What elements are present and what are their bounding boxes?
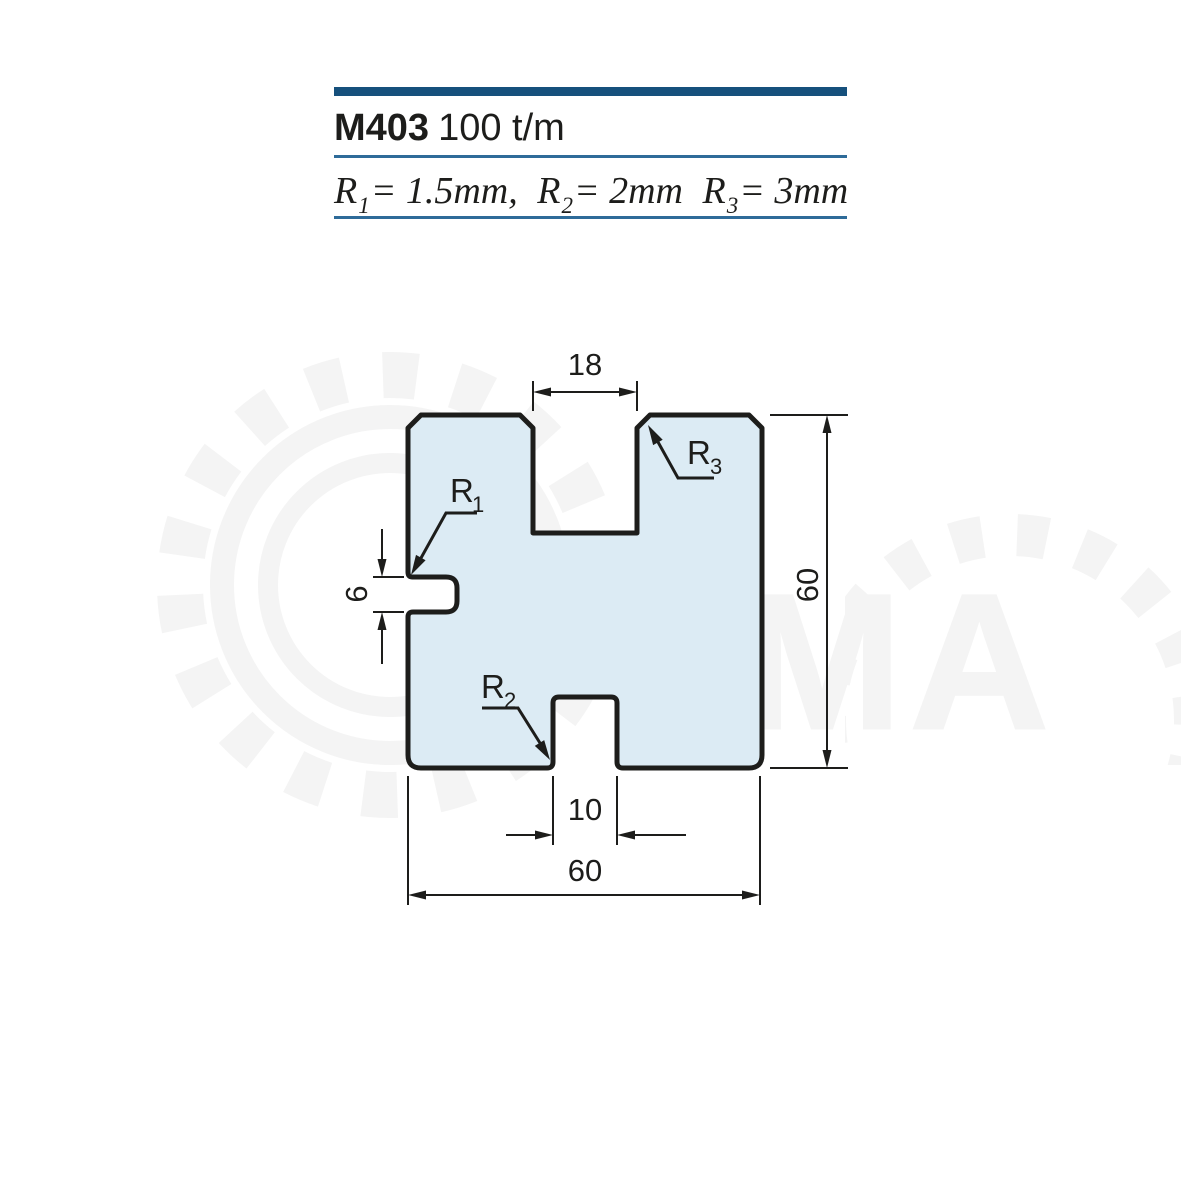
dim-bottom-notch-width: 10	[506, 792, 686, 840]
dim-side-notch-height: 6	[339, 529, 387, 664]
arrowhead-right-icon	[619, 388, 637, 397]
dim-overall-width-label: 60	[568, 853, 602, 888]
arrowhead-up-icon	[378, 612, 387, 630]
arrowhead-up-icon	[823, 415, 832, 433]
arrowhead-right-icon	[742, 891, 760, 900]
arrowhead-down-icon	[378, 559, 387, 577]
dim-side-notch-height-label: 6	[339, 585, 374, 602]
radius-label-r3: R	[687, 434, 711, 471]
dim-overall-width: 60	[408, 853, 760, 900]
radius-label-r3-sub: 3	[710, 454, 722, 479]
dim-top-slot-width-label: 18	[568, 347, 602, 382]
radius-label-r2-sub: 2	[504, 688, 516, 713]
arrowhead-left-icon	[408, 891, 426, 900]
catalog-page: M403100 t/m R1= 1.5mm, R2= 2mm R3= 3mm M…	[0, 0, 1181, 1181]
radius-label-r2: R	[481, 668, 505, 705]
radius-label-r1: R	[450, 472, 474, 509]
radius-label-r1-sub: 1	[472, 492, 484, 517]
dim-top-slot-width: 18	[533, 347, 637, 397]
die-cross-section-drawing: MA 18 6	[0, 0, 1181, 1181]
dim-bottom-notch-width-label: 10	[568, 792, 602, 827]
arrowhead-left-icon	[533, 388, 551, 397]
dim-overall-height-label: 60	[790, 568, 825, 602]
arrowhead-right-icon	[535, 831, 553, 840]
arrowhead-left-icon	[617, 831, 635, 840]
